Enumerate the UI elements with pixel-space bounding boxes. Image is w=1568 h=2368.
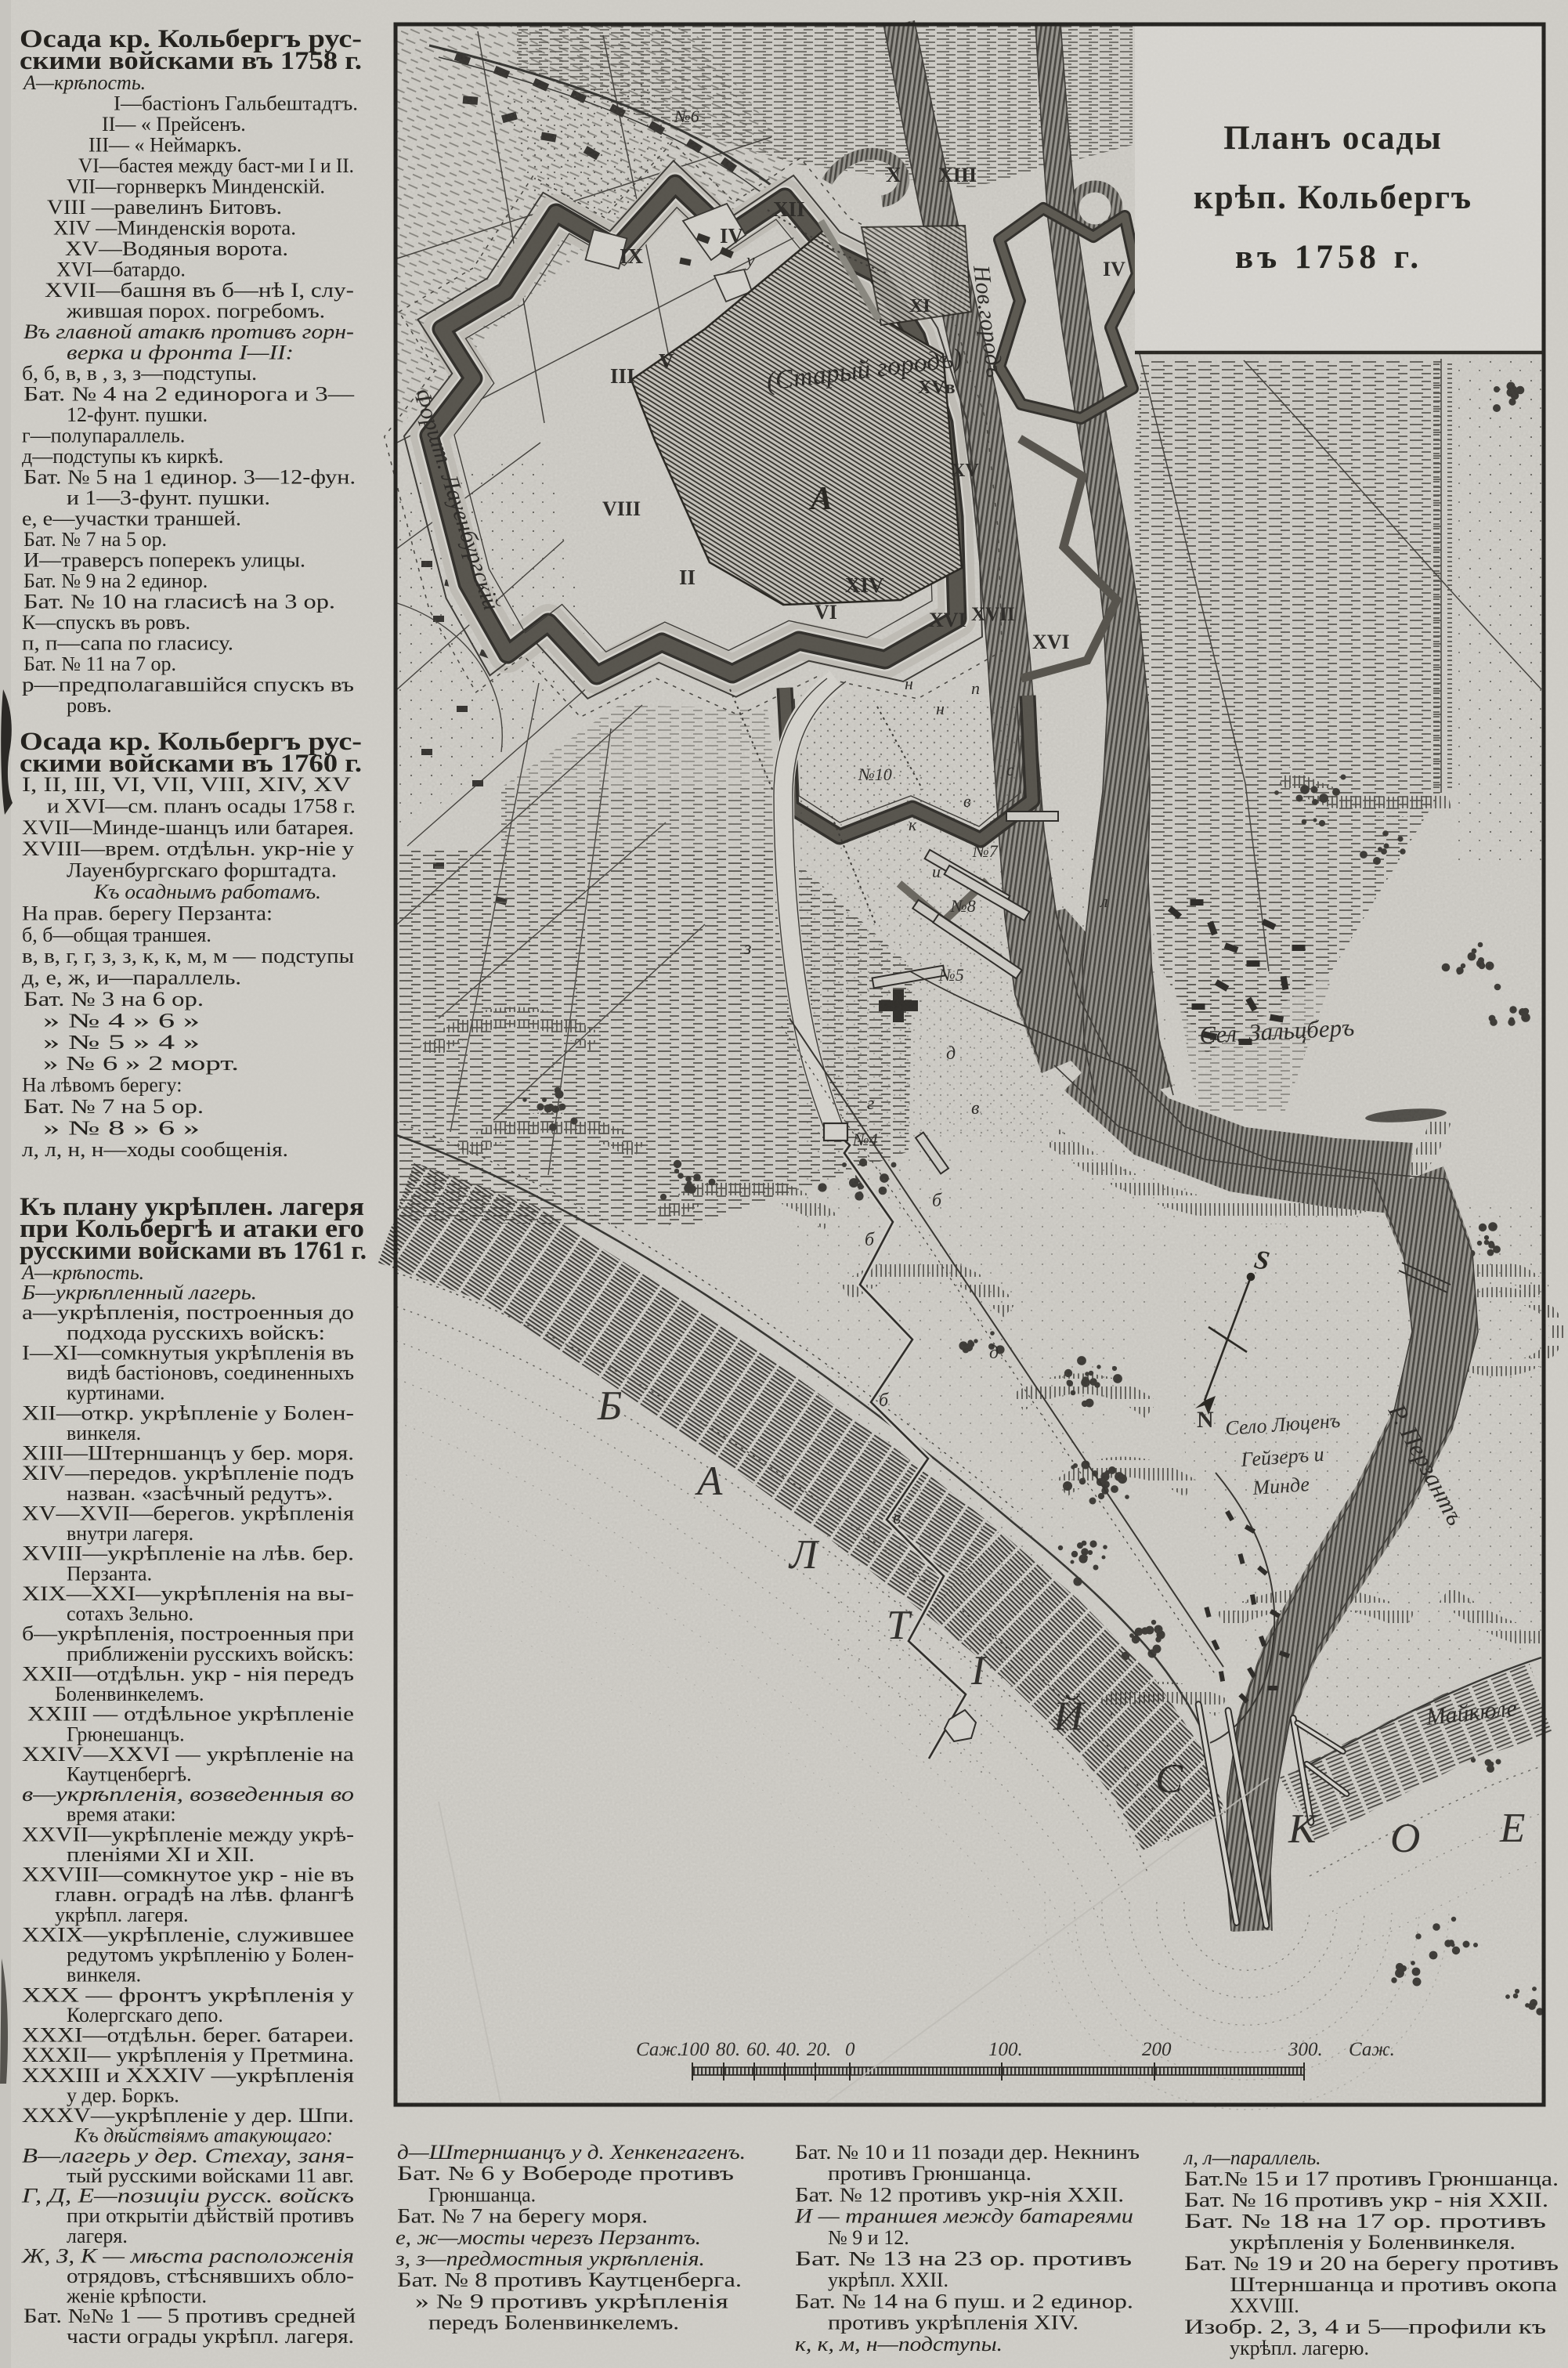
svg-text:I—бастіонъ Гальбештадтъ.: I—бастіонъ Гальбештадтъ. xyxy=(114,92,358,115)
svg-text:Бат. № 4 на 2 единорога и 3—: Бат. № 4 на 2 единорога и 3— xyxy=(23,383,355,406)
svg-text:» № 4 » 6 »: » № 4 » 6 » xyxy=(43,1009,200,1032)
svg-text:Изобр. 2, 3, 4 и 5—профил: Изобр. 2, 3, 4 и 5—профили къ xyxy=(1184,2316,1546,2338)
svg-text:л, л—параллель.: л, л—параллель. xyxy=(1183,2146,1321,2169)
svg-text:Бат. № 6 у Вобероде проти: Бат. № 6 у Вобероде противъ xyxy=(397,2162,734,2185)
svg-text:и XVI—см. планъ осады 1758 г.: и XVI—см. планъ осады 1758 г. xyxy=(47,794,356,817)
svg-text:в, в, г, г, з, з, к, к, м, м —: в, в, г, г, з, з, к, к, м, м — подступы xyxy=(22,945,354,967)
svg-text:А—крѣпость.: А—крѣпость. xyxy=(22,71,146,94)
svg-text:Бат. № 7 на 5 ор.: Бат. № 7 на 5 ор. xyxy=(23,1095,204,1118)
svg-text:Бат. № 19 и 20 на берегу проти: Бат. № 19 и 20 на берегу противъ xyxy=(1184,2252,1559,2275)
svg-text:VII—горнверкъ Минденскій.: VII—горнверкъ Минденскій. xyxy=(67,175,325,198)
svg-text:Бат. № 12 противъ укр-нія XXII: Бат. № 12 противъ укр-нія XXII. xyxy=(795,2183,1124,2206)
svg-text:г—полупараллель.: г—полупараллель. xyxy=(22,425,185,447)
svg-text:а—укрѣпленія, построенныя до: а—укрѣпленія, построенныя до xyxy=(22,1301,354,1324)
svg-text:Въ главной атакѣ противъ горн-: Въ главной атакѣ противъ горн- xyxy=(23,320,354,343)
svg-text:и 1—3-фунт. пушки.: и 1—3-фунт. пушки. xyxy=(67,486,270,509)
svg-text:противъ Грюншанца.: противъ Грюншанца. xyxy=(828,2162,1031,2185)
svg-text:XV—XVII—берегов. укрѣпленія: XV—XVII—берегов. укрѣпленія xyxy=(22,1502,354,1524)
svg-text:VIII —равелинъ Битовъ.: VIII —равелинъ Битовъ. xyxy=(47,196,282,219)
svg-text:XXVIII.: XXVIII. xyxy=(1230,2294,1299,2317)
svg-text:д, е, ж, и—параллель.: д, е, ж, и—параллель. xyxy=(22,967,241,989)
svg-text:Штерншанца и противъ окопа: Штерншанца и противъ окопа xyxy=(1230,2273,1558,2296)
svg-text:» № 9 противъ укрѣпленія: » № 9 противъ укрѣпленія xyxy=(415,2290,728,2312)
svg-text:з, з—предмостныя укрѣпленія.: з, з—предмостныя укрѣпленія. xyxy=(395,2247,705,2270)
svg-text:VI—бастея между баст-ми I и II: VI—бастея между баст-ми I и II. xyxy=(78,154,354,177)
svg-text:Бат. № 13 на 23 ор. прот: Бат. № 13 на 23 ор. противъ xyxy=(795,2247,1132,2270)
svg-text:при открытіи дѣйствій противъ: при открытіи дѣйствій противъ xyxy=(67,2204,354,2227)
svg-text:е, е—участки траншей.: е, е—участки траншей. xyxy=(22,508,241,530)
svg-text:Бат. №№ 1 — 5 противъ средней: Бат. №№ 1 — 5 противъ средней xyxy=(23,2305,356,2327)
svg-text:к, к, м, н—подступы.: к, к, м, н—подступы. xyxy=(795,2333,1003,2355)
svg-text:Колергскаго депо.: Колергскаго депо. xyxy=(67,2004,223,2026)
svg-text:Лауенбургскаго форштадта.: Лауенбургскаго форштадта. xyxy=(67,859,337,882)
svg-text:Бат. № 7 на 5 ор.: Бат. № 7 на 5 ор. xyxy=(23,528,167,551)
svg-text:п, п—сапа по гласису.: п, п—сапа по гласису. xyxy=(22,632,233,655)
svg-text:укрѣпл. XXII.: укрѣпл. XXII. xyxy=(828,2269,948,2291)
svg-text:» № 6 » 2 морт.: » № 6 » 2 морт. xyxy=(43,1052,239,1075)
svg-text:Бат. № 9 на 2 единор.: Бат. № 9 на 2 единор. xyxy=(23,569,208,592)
svg-text:Бат. № 11 на 7 ор.: Бат. № 11 на 7 ор. xyxy=(23,653,176,675)
svg-text:ровъ.: ровъ. xyxy=(67,694,112,717)
svg-text:передъ Боленвинкелемъ.: передъ Боленвинкелемъ. xyxy=(428,2312,679,2334)
svg-text:На прав. берегу Перзанта:: На прав. берегу Перзанта: xyxy=(22,902,273,924)
svg-text:Грюншанца.: Грюншанца. xyxy=(428,2183,536,2206)
svg-text:укрѣпл. лагеря.: укрѣпл. лагеря. xyxy=(55,1903,188,1926)
svg-text:противъ укрѣпленія XIV.: противъ укрѣпленія XIV. xyxy=(828,2312,1078,2334)
svg-text:Бат. № 10 на гласисѣ на 3 ор.: Бат. № 10 на гласисѣ на 3 ор. xyxy=(23,591,335,613)
svg-text:» № 8 » 6 »: » № 8 » 6 » xyxy=(43,1116,200,1139)
svg-text:XVIII—врем. отдѣльн. укр-ніе у: XVIII—врем. отдѣльн. укр-ніе у xyxy=(22,837,354,860)
svg-text:Бат. № 18 на 17 ор. прот: Бат. № 18 на 17 ор. противъ xyxy=(1184,2210,1546,2232)
svg-text:Бат. № 14 на 6 пуш. и 2 единор: Бат. № 14 на 6 пуш. и 2 единор. xyxy=(795,2290,1133,2312)
svg-text:I, II, III, VI, VII, VIII, XIV: I, II, III, VI, VII, VIII, XIV, XV xyxy=(22,773,351,796)
svg-text:сотахъ Зельно.: сотахъ Зельно. xyxy=(67,1603,193,1625)
svg-text:д—Штерншанцъ у д. Хенкенгагенъ: д—Штерншанцъ у д. Хенкенгагенъ. xyxy=(397,2141,746,2164)
svg-text:р—предполагавшійся спускъ въ: р—предполагавшійся спускъ въ xyxy=(22,674,354,696)
svg-text:XXIII — отдѣльное укрѣпленіе: XXIII — отдѣльное укрѣпленіе xyxy=(27,1703,354,1726)
svg-text:III— « Неймаркъ.: III— « Неймаркъ. xyxy=(89,134,242,157)
svg-text:Бат. № 7 на берегу моря.: Бат. № 7 на берегу моря. xyxy=(397,2205,648,2228)
svg-text:XVII—Минде-шанцъ или батарея.: XVII—Минде-шанцъ или батарея. xyxy=(22,816,354,839)
svg-text:XV—Водяныя ворота.: XV—Водяныя ворота. xyxy=(65,237,288,260)
svg-text:XIV —Минденскія ворота.: XIV —Минденскія ворота. xyxy=(53,217,296,240)
svg-text:XXXV—укрѣпленіе у дер. Шпи.: XXXV—укрѣпленіе у дер. Шпи. xyxy=(22,2104,354,2127)
svg-text:б, б, в, в , з, з—подступы.: б, б, в, в , з, з—подступы. xyxy=(22,362,257,385)
svg-text:б, б—общая траншея.: б, б—общая траншея. xyxy=(22,924,211,946)
svg-text:XII—откр. укрѣпленіе у Болен-: XII—откр. укрѣпленіе у Болен- xyxy=(22,1401,354,1424)
svg-text:И — траншея между батареям: И — траншея между батареями xyxy=(794,2205,1133,2228)
svg-text:Бат. № 10 и 11 позади дер. Нек: Бат. № 10 и 11 позади дер. Некнинъ xyxy=(795,2141,1140,2164)
svg-text:Бат.№ 15 и 17 противъ Грюншанц: Бат.№ 15 и 17 противъ Грюншанца. xyxy=(1184,2167,1559,2190)
svg-text:» № 5 » 4 »: » № 5 » 4 » xyxy=(43,1031,200,1054)
svg-text:И—траверсъ поперекъ улицы.: И—траверсъ поперекъ улицы. xyxy=(23,549,305,572)
svg-text:части ограды укрѣпл. лагеря.: части ограды укрѣпл. лагеря. xyxy=(67,2325,354,2348)
svg-text:Къ осаднымъ работамъ.: Къ осаднымъ работамъ. xyxy=(93,880,321,903)
svg-text:л, л, н, н—ходы сообщенія.: л, л, н, н—ходы сообщенія. xyxy=(22,1138,288,1161)
svg-text:12-фунт. пушки.: 12-фунт. пушки. xyxy=(67,403,208,426)
svg-text:укрѣпленія у Боленвинкеля.: укрѣпленія у Боленвинкеля. xyxy=(1230,2231,1516,2254)
svg-text:верка и фронта I—II:: верка и фронта I—II: xyxy=(67,342,294,364)
svg-text:Бат. № 8 противъ Каутценберга.: Бат. № 8 противъ Каутценберга. xyxy=(397,2269,742,2291)
svg-text:На лѣвомъ берегу:: На лѣвомъ берегу: xyxy=(22,1074,182,1097)
svg-text:XVII—башня въ б—нѣ I, слу-: XVII—башня въ б—нѣ I, слу- xyxy=(45,279,354,302)
svg-text:д—подступы къ киркѣ.: д—подступы къ киркѣ. xyxy=(22,445,223,468)
svg-text:Бат. № 16 противъ укр - нія XX: Бат. № 16 противъ укр - нія XXII. xyxy=(1184,2189,1548,2211)
svg-text:№ 9 и 12.: № 9 и 12. xyxy=(828,2226,909,2249)
svg-text:время атаки:: время атаки: xyxy=(67,1803,176,1826)
svg-text:II— « Прейсенъ.: II— « Прейсенъ. xyxy=(102,113,246,136)
svg-text:К—спускъ въ ровъ.: К—спускъ въ ровъ. xyxy=(22,611,190,634)
svg-text:Бат. № 3 на 6 ор.: Бат. № 3 на 6 ор. xyxy=(23,988,204,1010)
svg-text:Бат. № 5 на 1 единор. 3—12-фун: Бат. № 5 на 1 единор. 3—12-фун. xyxy=(23,466,356,489)
svg-text:XVI—батардо.: XVI—батардо. xyxy=(56,258,186,281)
svg-text:жившая порох. погребомъ.: жившая порох. погребомъ. xyxy=(66,300,325,323)
svg-text:е, ж—мосты черезъ Перзантъ.: е, ж—мосты черезъ Перзантъ. xyxy=(396,2226,701,2249)
svg-text:укрѣпл. лагерю.: укрѣпл. лагерю. xyxy=(1230,2337,1369,2359)
